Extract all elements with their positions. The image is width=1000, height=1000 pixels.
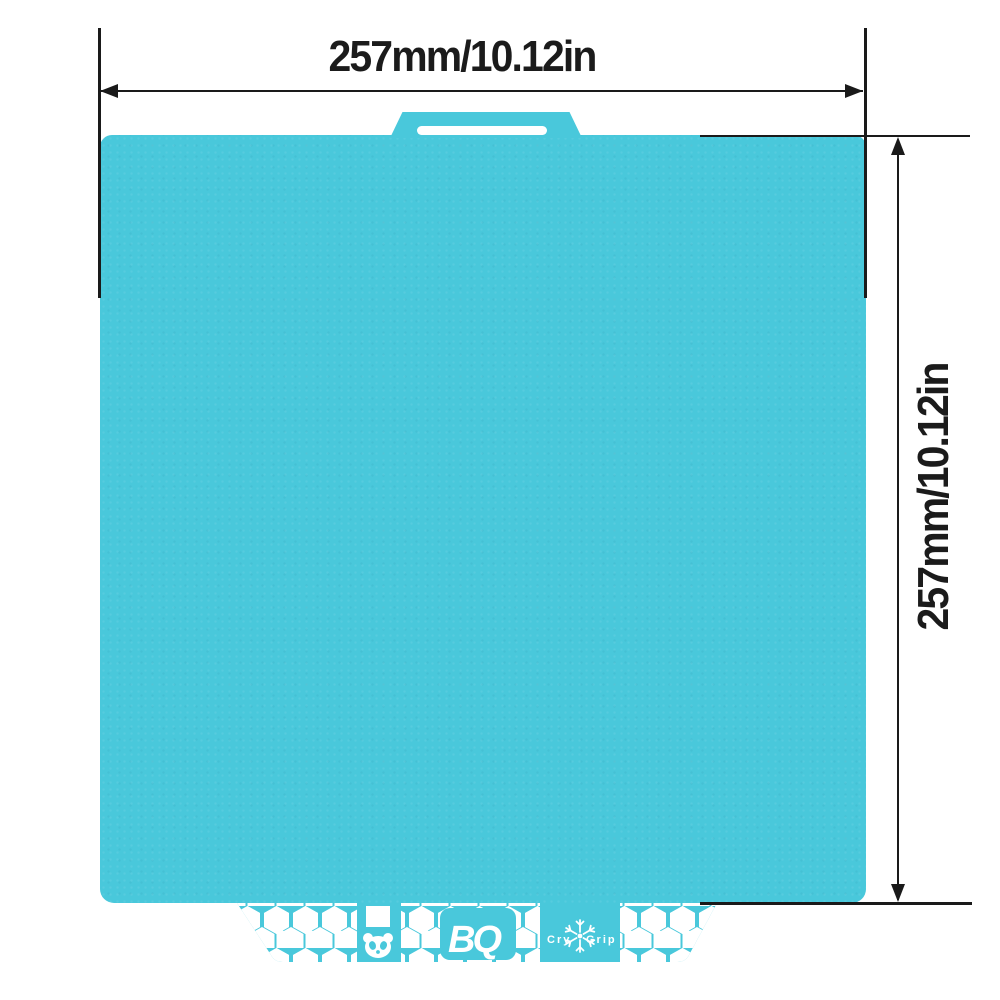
bq-logo: BQ — [448, 919, 501, 961]
dimension-line-vertical — [897, 140, 900, 900]
extension-line-right — [864, 28, 867, 298]
horizontal-dimension-label: 257mm/10.12in — [329, 32, 596, 82]
arrowhead-right — [845, 84, 863, 98]
plate-handle-slot — [417, 126, 547, 135]
square-cutout — [366, 906, 390, 927]
arrowhead-left — [100, 84, 118, 98]
extension-line-top — [700, 135, 970, 138]
plate-top-tab — [390, 112, 582, 138]
extension-line-bottom — [700, 902, 972, 905]
arrowhead-up — [891, 137, 905, 155]
arrowhead-down — [891, 884, 905, 902]
vertical-dimension-label: 257mm/10.12in — [909, 364, 959, 631]
dimension-line-horizontal — [101, 90, 863, 93]
extension-line-left — [98, 28, 101, 298]
plate-bottom-tab: BQ Cry Grip — [230, 903, 722, 965]
dimension-diagram: BQ Cry Grip — [0, 0, 1000, 1000]
build-plate-surface — [100, 135, 866, 903]
